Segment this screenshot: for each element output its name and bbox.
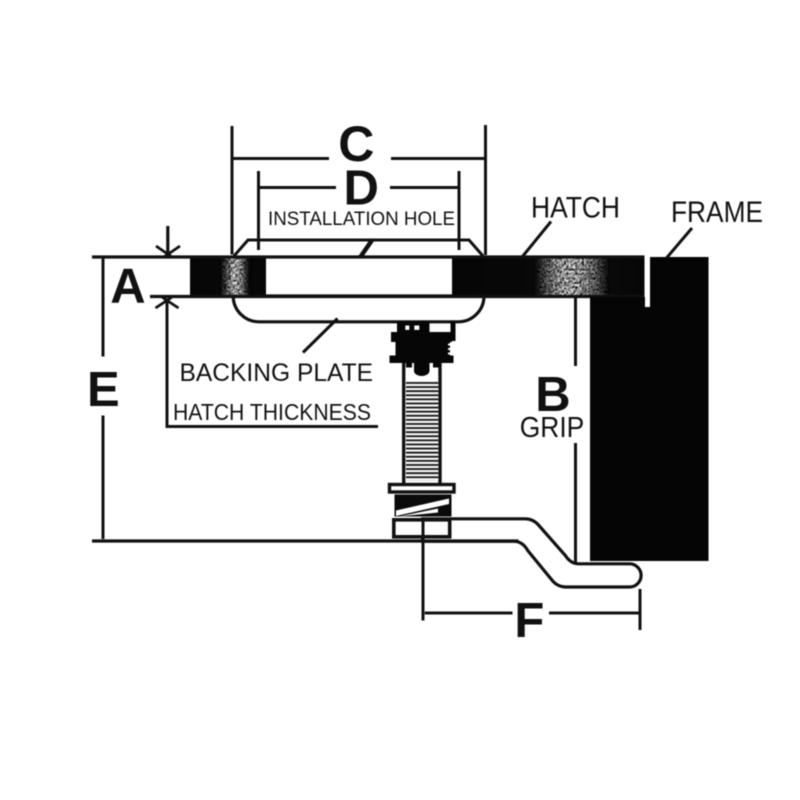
svg-text:HATCH THICKNESS: HATCH THICKNESS bbox=[173, 399, 371, 425]
svg-text:F: F bbox=[514, 594, 544, 648]
svg-text:D: D bbox=[344, 162, 379, 216]
svg-text:A: A bbox=[110, 260, 145, 314]
svg-text:GRIP: GRIP bbox=[520, 412, 585, 444]
svg-text:INSTALLATION HOLE: INSTALLATION HOLE bbox=[268, 209, 455, 230]
svg-text:FRAME: FRAME bbox=[671, 196, 763, 229]
svg-text:E: E bbox=[87, 363, 120, 417]
svg-text:BACKING PLATE: BACKING PLATE bbox=[180, 359, 374, 387]
svg-text:HATCH: HATCH bbox=[531, 192, 620, 225]
